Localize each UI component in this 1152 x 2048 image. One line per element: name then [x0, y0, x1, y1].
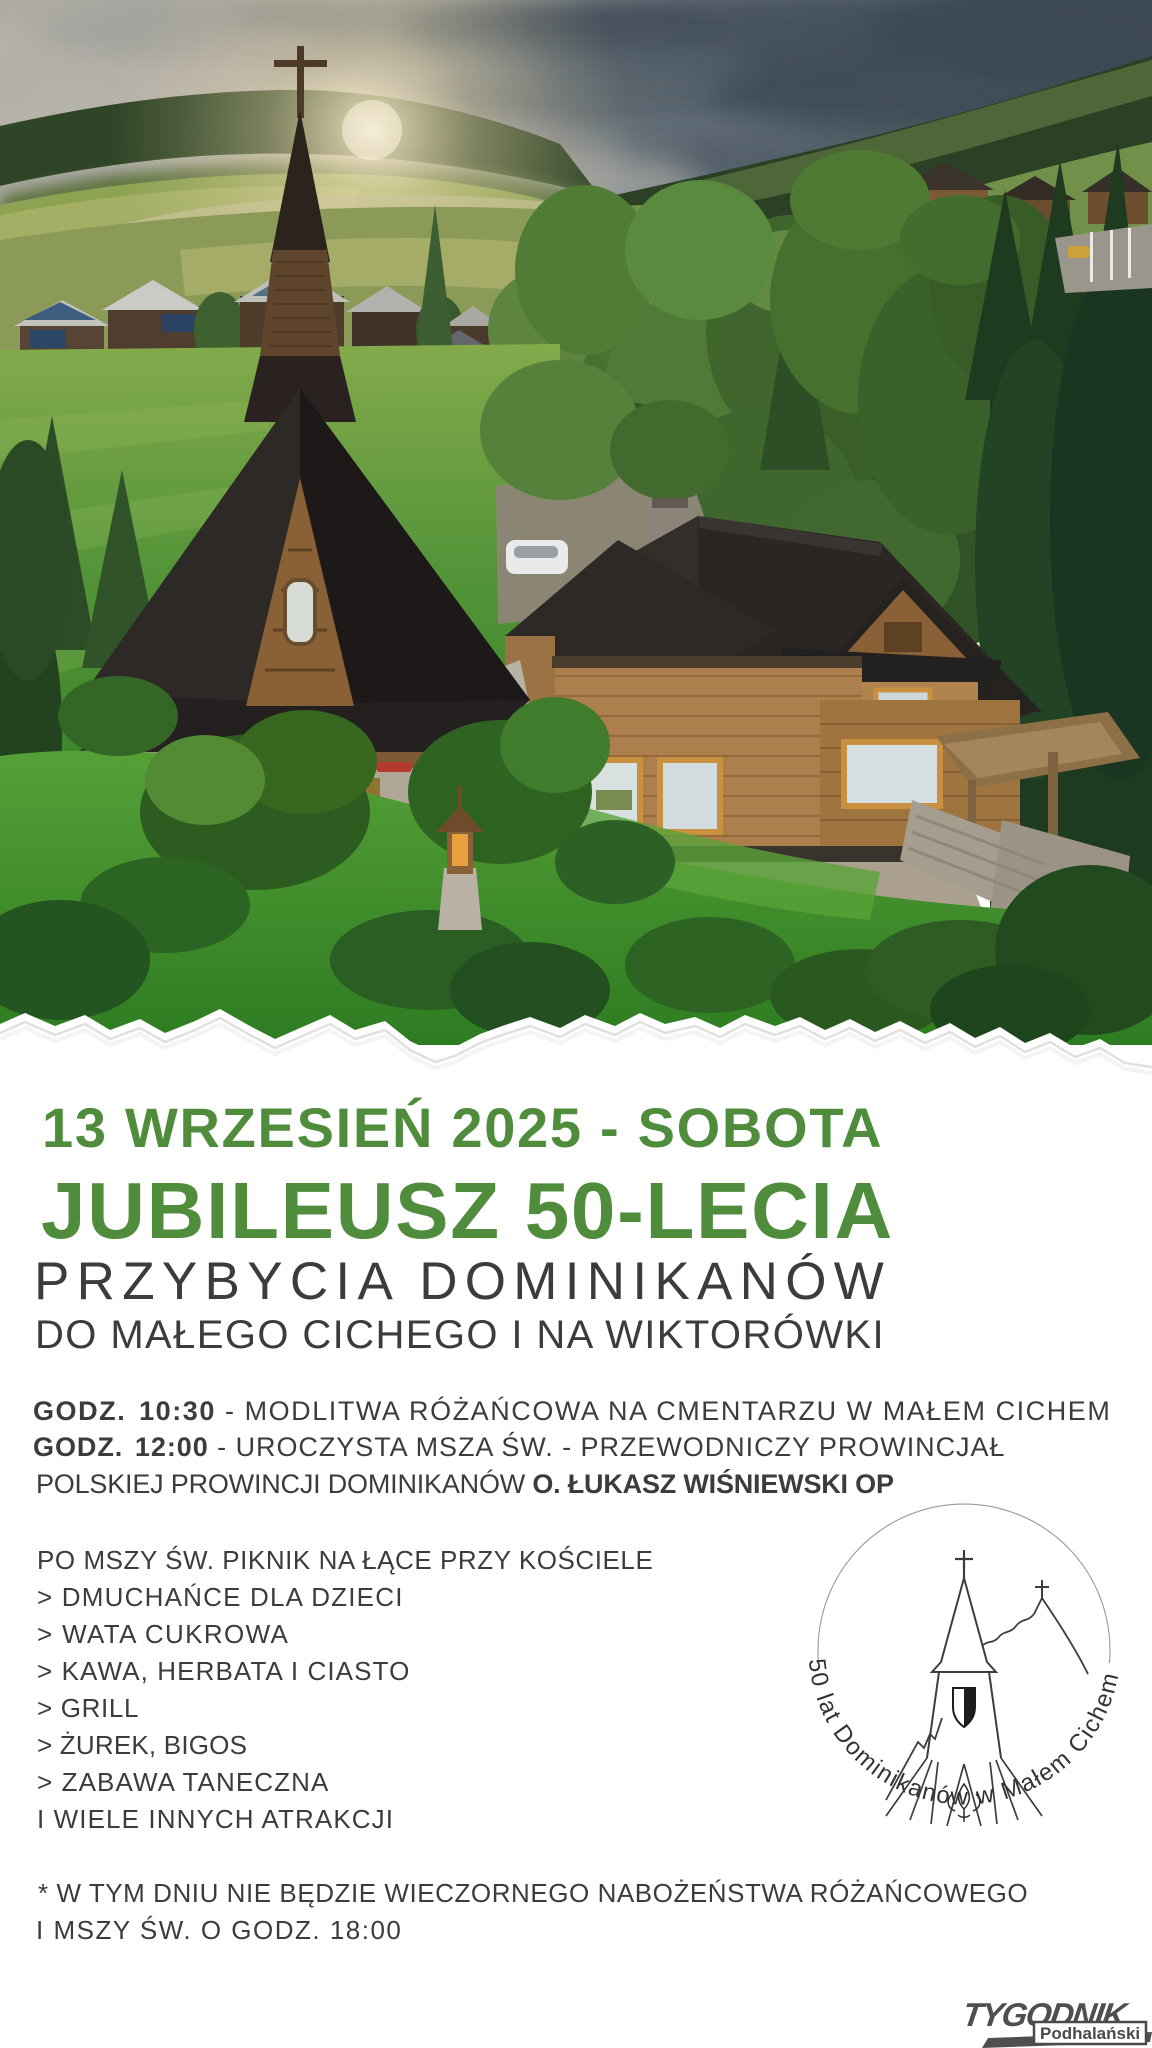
- svg-text:50 lat Dominikanów w Małem Cic: 50 lat Dominikanów w Małem Cichem: [803, 1657, 1125, 1810]
- svg-text:Podhalański: Podhalański: [1040, 2024, 1140, 2043]
